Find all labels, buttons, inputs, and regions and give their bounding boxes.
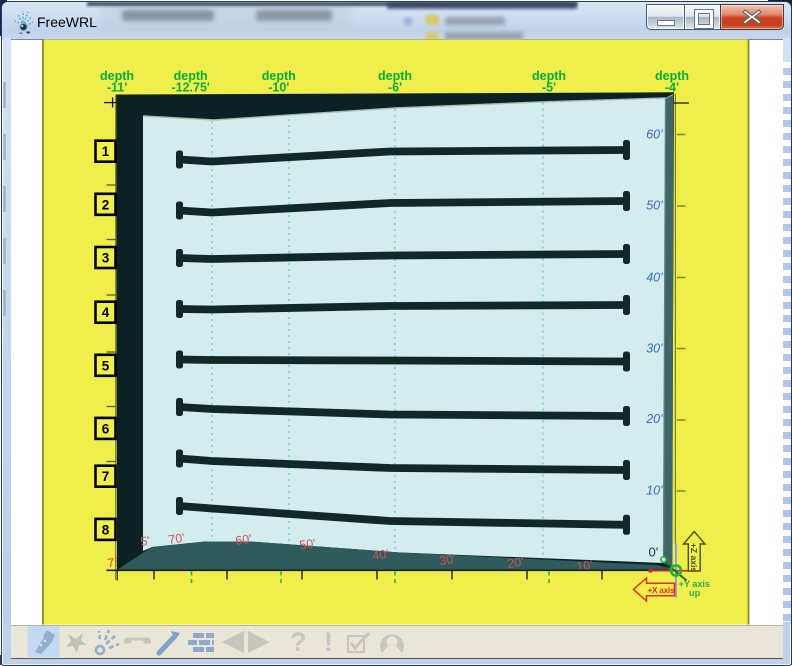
svg-text:up: up [689,588,701,598]
svg-text:50': 50' [298,536,316,552]
svg-text:40': 40' [371,547,389,563]
svg-text:30': 30' [646,342,663,356]
svg-text:20': 20' [506,555,524,571]
svg-text:10': 10' [575,558,593,574]
svg-text:0': 0' [649,545,659,560]
svg-text:3: 3 [102,251,110,266]
svg-text:8: 8 [102,522,110,537]
svg-text:20': 20' [645,412,663,426]
svg-text:40': 40' [646,271,663,285]
svg-text:7: 7 [102,469,110,484]
svg-text:+X axis: +X axis [648,585,675,595]
svg-text:70': 70' [167,531,185,547]
svg-text:60': 60' [646,128,663,142]
svg-text:50': 50' [646,199,663,213]
svg-text:5: 5 [102,358,110,373]
svg-text:-11': -11' [107,81,127,95]
svg-text:-10': -10' [268,81,289,95]
svg-text:-5': -5' [542,81,556,95]
svg-text:10': 10' [646,484,663,498]
svg-text:+Z axis: +Z axis [689,543,699,572]
svg-text:60': 60' [234,532,252,548]
svg-text:5': 5' [139,534,150,549]
svg-text:-6': -6' [388,81,402,95]
svg-text:-12.75': -12.75' [171,81,209,95]
svg-text:6: 6 [102,421,110,436]
svg-text:4: 4 [102,305,110,320]
svg-text:2: 2 [102,197,110,212]
svg-text:1: 1 [102,144,110,159]
svg-text:30': 30' [438,552,456,568]
